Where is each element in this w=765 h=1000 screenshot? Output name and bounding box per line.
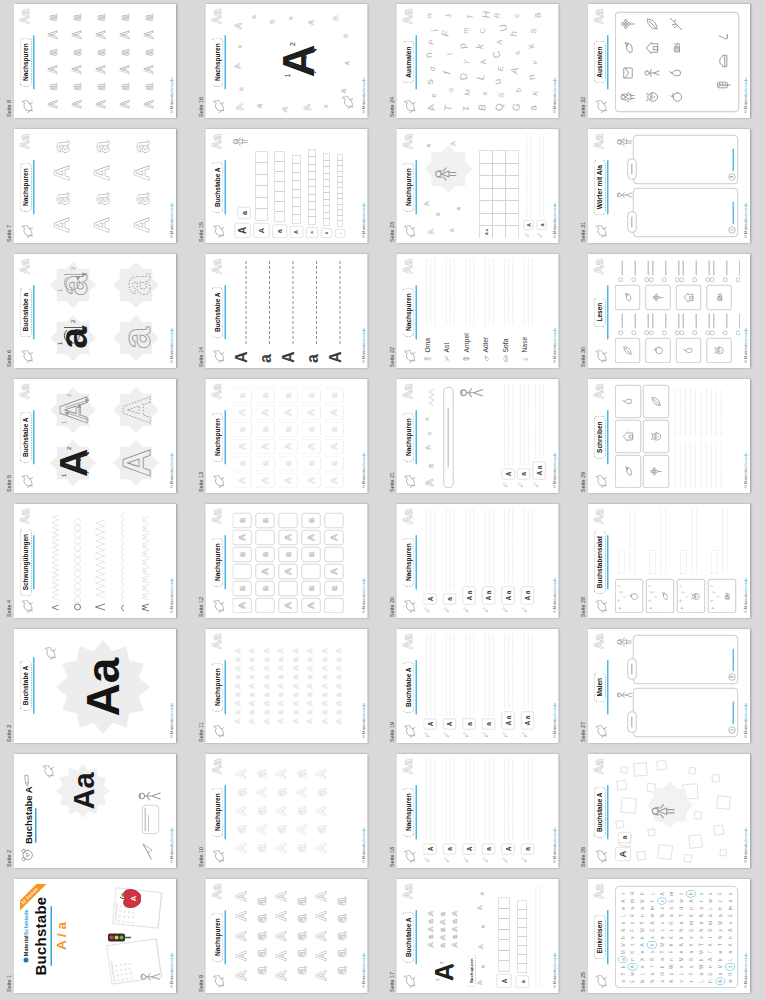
letters-badge-icon: Aa bbox=[593, 509, 605, 524]
color-letter: f bbox=[441, 70, 453, 75]
big-letters-star: Aa bbox=[55, 761, 111, 821]
card-doodle-icon bbox=[619, 65, 636, 82]
worksheet-header: Buchstabe AAa bbox=[19, 384, 40, 488]
worksheet-thumbnail-grid: Seite 132 SeitenMaterialSchmiedeBuchstab… bbox=[0, 0, 765, 1000]
page-cell: Seite 15Buchstabe AAaAaAaAaAa© Materials… bbox=[191, 125, 382, 250]
girl-figure-icon bbox=[651, 803, 679, 821]
page-thumbnail[interactable]: SchwungübungenAa© Materialschmiede bbox=[14, 504, 176, 618]
worksheet-header: Buchstabe aAa bbox=[19, 259, 40, 363]
worksheet-title: Malen bbox=[594, 672, 606, 701]
pencil-doodle-icon bbox=[482, 732, 489, 739]
worksheet-title: Lesen bbox=[594, 297, 606, 327]
page-thumbnail[interactable]: NachspurenAaOmaAstAmpelAdlerSofaNase© Ma… bbox=[397, 254, 559, 368]
writing-lines bbox=[502, 634, 514, 709]
scatter-square bbox=[633, 762, 647, 776]
flower-doodle-icon bbox=[649, 465, 663, 479]
subtitle-line bbox=[416, 535, 418, 589]
letter-box: a bbox=[237, 207, 250, 219]
page-cell: Seite 32AusmalenAa© Materialschmiede bbox=[574, 0, 765, 125]
subtitle-line bbox=[607, 160, 609, 214]
page-thumbnail[interactable]: BuchstabensalatAaaeplfaeplfaeplfaeplf© M… bbox=[588, 504, 750, 618]
letters-badge-icon: Aa bbox=[593, 634, 605, 649]
kangaroo-icon bbox=[210, 350, 225, 363]
worksheet-header: SchreibenAa bbox=[593, 384, 614, 488]
writing-lines bbox=[443, 259, 455, 325]
page-cell: Seite 26Buchstabe AAaAa© Materialschmied… bbox=[574, 750, 765, 875]
subtitle-line bbox=[224, 410, 226, 464]
letter-box: a bbox=[516, 976, 530, 989]
subtitle-line bbox=[416, 285, 418, 339]
pencil-doodle-icon bbox=[463, 732, 470, 739]
worksheet-header: NachspurenAa bbox=[402, 259, 423, 363]
page-thumbnail[interactable]: EinkreisenAaxTkaMVhNsLeArEwAnKtvFzRamHbL… bbox=[588, 879, 750, 993]
copyright: © Materialschmiede bbox=[361, 703, 365, 738]
worksheet-header: AusmalenAa bbox=[402, 9, 423, 113]
page-label: Seite 26 bbox=[580, 750, 586, 867]
page-label: Seite 21 bbox=[389, 375, 395, 492]
worksheet-header: Wörter mit A/aAa bbox=[593, 134, 614, 238]
trace-start-letter: A bbox=[326, 349, 350, 363]
copyright: © Materialschmiede bbox=[553, 953, 557, 988]
paper-plane-icon bbox=[142, 843, 153, 860]
pencil-doodle-icon bbox=[502, 732, 509, 739]
kangaroo-icon bbox=[402, 975, 417, 988]
zigzag-icon bbox=[428, 388, 436, 407]
letter-box: a bbox=[618, 832, 631, 843]
page-thumbnail[interactable]: SchreibenAa© Materialschmiede bbox=[588, 379, 750, 493]
pencil-doodle-icon bbox=[502, 607, 509, 614]
page-thumbnail[interactable]: Buchstabe AAaAa© Materialschmiede bbox=[588, 754, 750, 868]
letters-badge-icon: Aa bbox=[402, 634, 414, 649]
svg-text:a: a bbox=[52, 274, 95, 296]
copyright: © Materialschmiede bbox=[744, 203, 748, 238]
color-letter: S bbox=[529, 28, 538, 35]
letters-badge-icon: Aa bbox=[402, 9, 414, 24]
worksheet-title: Buchstabe A bbox=[403, 662, 415, 712]
writing-lines bbox=[675, 390, 696, 436]
letter-star-poster: Aa bbox=[48, 639, 159, 735]
worksheet-title: Nachspuren bbox=[20, 38, 32, 87]
writing-lines bbox=[463, 509, 475, 584]
swing-exercise-row bbox=[93, 510, 107, 613]
drawing-panel: 2 bbox=[633, 635, 738, 684]
color-letter: E bbox=[496, 65, 505, 71]
pencil-doodle-icon bbox=[533, 482, 540, 489]
nose-doodle-icon bbox=[715, 28, 732, 45]
pencil-doodle-icon bbox=[482, 607, 489, 614]
picture-box: aeplf bbox=[677, 579, 705, 613]
house-doodle-icon bbox=[682, 291, 695, 304]
worksheet-header: MalenAa bbox=[593, 634, 614, 738]
worksheet-title: Nachspuren bbox=[211, 913, 223, 962]
kangaroo-icon bbox=[40, 765, 55, 778]
page-cell: Seite 4SchwungübungenAa© Materialschmied… bbox=[0, 500, 191, 625]
page-thumbnail[interactable]: AusmalenAaAesdnPiwTuftFJzMDYpmrBxLAkCHQS… bbox=[397, 4, 559, 118]
svg-text:1: 1 bbox=[57, 288, 63, 292]
subtitle-line bbox=[607, 410, 609, 464]
owl-doodle-icon bbox=[649, 430, 663, 444]
color-letter: G bbox=[510, 102, 523, 112]
writing-lines bbox=[537, 134, 545, 217]
page-label: Seite 1 bbox=[6, 875, 12, 992]
trace-start-letter: A bbox=[279, 349, 303, 363]
copyright: © Materialschmiede bbox=[170, 828, 174, 863]
kangaroo-icon bbox=[19, 225, 34, 238]
letters-badge-icon: Aa bbox=[593, 259, 605, 274]
girl-figure-icon bbox=[616, 137, 634, 148]
color-letter: A bbox=[479, 59, 488, 65]
instruction-banner bbox=[444, 387, 454, 488]
color-letter: d bbox=[428, 66, 437, 72]
color-letter: C bbox=[478, 27, 487, 34]
page-cell: Seite 29SchreibenAa© Materialschmiede bbox=[574, 375, 765, 500]
page-thumbnail[interactable]: AusmalenAa© Materialschmiede bbox=[588, 4, 750, 118]
copyright: © Materialschmiede bbox=[170, 953, 174, 988]
svg-text:1: 1 bbox=[61, 473, 67, 477]
page-label: Seite 4 bbox=[6, 500, 12, 617]
scatter-square bbox=[713, 825, 724, 836]
color-letter: n bbox=[424, 52, 435, 59]
traffic-light-icon bbox=[107, 932, 132, 943]
writing-lines bbox=[675, 442, 696, 488]
page-cell: Seite 28BuchstabensalatAaaeplfaeplfaeplf… bbox=[574, 500, 765, 625]
page-label: Seite 23 bbox=[389, 125, 395, 242]
letters-badge-icon: Aa bbox=[19, 134, 31, 149]
page-label: Seite 19 bbox=[389, 625, 395, 742]
trace-line bbox=[316, 261, 327, 344]
worksheet-header: SchwungübungenAa bbox=[19, 509, 40, 613]
owl-doodle-icon bbox=[689, 591, 701, 603]
kangaroo-icon bbox=[210, 225, 225, 238]
page-cell: Seite 23NachspurenAaAaAaAaAA aAa© Materi… bbox=[383, 125, 574, 250]
page-thumbnail[interactable]: Buchstabe AAa© Materialschmiede bbox=[14, 754, 176, 868]
letter-box: A bbox=[253, 223, 269, 238]
color-letter: s bbox=[513, 51, 522, 56]
letter-box: A bbox=[502, 844, 515, 855]
flower-doodle-icon bbox=[651, 291, 664, 304]
worksheet-title: Ausmalen bbox=[594, 41, 606, 83]
worksheet-title: Buchstabensalat bbox=[594, 531, 606, 594]
page-thumbnail[interactable]: NachspurenAaAaAaAAaA a© Materialschmiede bbox=[397, 379, 559, 493]
worksheet-title: Nachspuren bbox=[403, 413, 415, 462]
page-label: Seite 8 bbox=[6, 0, 12, 117]
logo-dot-icon bbox=[24, 958, 29, 963]
subtitle-line bbox=[416, 660, 418, 714]
letters-badge-icon: Aa bbox=[593, 759, 605, 774]
color-letter: c bbox=[512, 13, 521, 19]
worksheet-header: NachspurenAa bbox=[210, 634, 231, 738]
writing-lines bbox=[521, 509, 533, 584]
panel-caption-line bbox=[733, 202, 734, 225]
color-letter: L bbox=[474, 73, 487, 81]
letter-box: A bbox=[234, 223, 250, 238]
color-letter: a bbox=[527, 105, 539, 112]
page-cell: Seite 14Buchstabe AAaAaAaA© Materialschm… bbox=[191, 250, 382, 375]
page-thumbnail[interactable]: NachspurenAaAaA aA aA aA a© Materialschm… bbox=[397, 504, 559, 618]
copyright: © Materialschmiede bbox=[170, 703, 174, 738]
worksheet-header: Buchstabe AAa bbox=[593, 759, 614, 863]
page-thumbnail[interactable]: NachspurenAaAaAaAaAA aAa© Materialschmie… bbox=[397, 129, 559, 243]
apple-doodle-icon bbox=[627, 591, 639, 603]
subtitle-line bbox=[607, 35, 609, 89]
page-thumbnail[interactable]: MalenAa12© Materialschmiede bbox=[588, 629, 750, 743]
copyright: © Materialschmiede bbox=[170, 328, 174, 363]
letter-box: A bbox=[424, 844, 437, 855]
pencil-doodle-icon bbox=[482, 857, 489, 864]
worksheet-title: Nachspuren bbox=[403, 288, 415, 337]
flower-doodle-icon bbox=[619, 16, 636, 33]
copyright: © Materialschmiede bbox=[170, 203, 174, 238]
worksheet-header: NachspurenAa bbox=[402, 759, 423, 863]
pear-doodle-icon bbox=[621, 395, 635, 409]
letter-box: A bbox=[290, 226, 303, 238]
page-thumbnail[interactable]: NachspurenAaAaAaAaAaAaAaAaAaAaAaAaAaAaAa… bbox=[14, 4, 176, 118]
pages-grid[interactable]: Seite 132 SeitenMaterialSchmiedeBuchstab… bbox=[0, 0, 765, 1000]
trace-letter: a bbox=[104, 260, 165, 310]
letter-box: A a bbox=[482, 587, 495, 605]
subtitle-line bbox=[416, 785, 418, 839]
page-thumbnail[interactable]: NachspurenAaAAAAAaaaaaAAAAAaaaaaAAAAAaaa… bbox=[205, 879, 367, 993]
page-thumbnail[interactable]: Buchstabe AAaA12A12AA© Materialschmiede bbox=[14, 379, 176, 493]
letter-box: A bbox=[615, 847, 631, 861]
page-thumbnail[interactable]: NachspurenAaAaAaAaAaAaAaAaAaAaAaAaAaA© M… bbox=[205, 754, 367, 868]
swing-exercise-row bbox=[48, 510, 62, 613]
letter-box: a bbox=[521, 844, 534, 855]
picture-box bbox=[643, 385, 669, 418]
writing-lines bbox=[443, 509, 455, 591]
word-label: Ast bbox=[443, 328, 451, 353]
letter-box: a bbox=[443, 594, 456, 605]
page-cell: Seite 132 SeitenMaterialSchmiedeBuchstab… bbox=[0, 875, 191, 1000]
kangaroo-icon bbox=[593, 850, 608, 863]
page-thumbnail[interactable]: 32 SeitenMaterialSchmiedeBuchstabeA / aA… bbox=[14, 879, 176, 993]
picture-box bbox=[615, 455, 641, 488]
color-letter: e bbox=[429, 93, 438, 98]
kangaroo-icon bbox=[402, 100, 417, 113]
page-label: Seite 24 bbox=[389, 0, 395, 117]
page-thumbnail[interactable]: LesenAa© Materialschmiede bbox=[588, 254, 750, 368]
girl-figure-icon bbox=[435, 166, 461, 182]
copyright: © Materialschmiede bbox=[170, 453, 174, 488]
letter-box: a bbox=[482, 719, 495, 730]
pencil-doodle-icon bbox=[424, 607, 431, 614]
kangaroo-icon bbox=[19, 475, 34, 488]
subtitle-line bbox=[416, 410, 418, 464]
color-letter: A bbox=[495, 39, 504, 45]
scatter-square bbox=[636, 851, 645, 860]
word-label: Sofa bbox=[502, 328, 510, 353]
page-thumbnail[interactable]: NachspurenAaAaAaAaAaAaAa© Materialschmie… bbox=[14, 129, 176, 243]
word-label: Adler bbox=[482, 328, 490, 353]
writing-lines bbox=[424, 634, 436, 716]
subtitle-line bbox=[607, 535, 609, 589]
subtitle-line bbox=[33, 285, 35, 339]
letters-badge-icon: Aa bbox=[210, 634, 222, 649]
kangaroo-icon bbox=[593, 975, 608, 988]
color-letter: C bbox=[490, 50, 503, 59]
svg-text:Aa: Aa bbox=[77, 657, 129, 716]
page-thumbnail[interactable]: NachspurenAaAaAaAa© Materialschmiede bbox=[397, 754, 559, 868]
kangaroo-icon bbox=[339, 96, 354, 109]
page-cell: Seite 22NachspurenAaOmaAstAmpelAdlerSofa… bbox=[383, 250, 574, 375]
worksheet-title: Schwungübungen bbox=[20, 529, 32, 596]
kangaroo-icon bbox=[593, 475, 608, 488]
worksheet-title: Nachspuren bbox=[211, 663, 223, 712]
page-label: Seite 32 bbox=[580, 0, 586, 117]
writing-lines bbox=[521, 634, 533, 709]
color-letter: r bbox=[463, 14, 475, 19]
swing-exercise-row bbox=[70, 510, 84, 613]
svg-text:a: a bbox=[52, 327, 95, 349]
page-cell: Seite 6Buchstabe aAaa12a12aa© Materialsc… bbox=[0, 250, 191, 375]
worksheet-header: Buchstabe AAa bbox=[210, 134, 231, 238]
page-thumbnail[interactable]: Buchstabe aAaa12a12aa© Materialschmiede bbox=[14, 254, 176, 368]
page-cell: Seite 30LesenAa© Materialschmiede bbox=[574, 250, 765, 375]
subtitle-line bbox=[607, 660, 609, 714]
worksheet-header: NachspurenAa bbox=[210, 384, 231, 488]
scatter-square bbox=[688, 767, 695, 774]
kangaroo-icon bbox=[402, 225, 417, 238]
coloring-frame bbox=[615, 12, 739, 112]
page-label: Seite 14 bbox=[197, 250, 203, 367]
kangaroo-icon bbox=[593, 725, 608, 738]
page-thumbnail[interactable]: Buchstabe AAaAaAaA© Materialschmiede bbox=[205, 254, 367, 368]
writing-lines bbox=[443, 759, 455, 841]
subtitle-line bbox=[224, 285, 226, 339]
copyright: © Materialschmiede bbox=[744, 328, 748, 363]
kangaroo-icon bbox=[210, 725, 225, 738]
writing-lines bbox=[463, 259, 475, 325]
letters-badge-icon: Aa bbox=[19, 384, 31, 399]
panel-number: 2 bbox=[728, 174, 735, 181]
bird-doodle-icon bbox=[658, 591, 670, 603]
page-label: Seite 3 bbox=[6, 625, 12, 742]
page-label: Seite 10 bbox=[197, 750, 203, 867]
worksheet-title: Nachspuren bbox=[211, 538, 223, 587]
color-letter: x bbox=[525, 43, 537, 51]
svg-text:1: 1 bbox=[283, 73, 290, 77]
scatter-square bbox=[656, 760, 667, 771]
writing-lines bbox=[424, 509, 436, 591]
worksheet-header: LesenAa bbox=[593, 259, 614, 363]
page-thumbnail[interactable]: NachspurenAaA12AaAaAaAaAaAaAaAaA© Materi… bbox=[205, 4, 367, 118]
letter-box: a bbox=[517, 469, 530, 480]
worksheet-header: NachspurenAa bbox=[210, 9, 231, 113]
worksheet-header: NachspurenAa bbox=[19, 134, 40, 238]
subtitle-line bbox=[33, 410, 35, 464]
page-label: Seite 6 bbox=[6, 250, 12, 367]
pencil-doodle-icon bbox=[443, 607, 450, 614]
worksheet-title: Schreiben bbox=[594, 416, 606, 458]
scatter-square bbox=[615, 820, 624, 829]
page-cell: Seite 8NachspurenAaAaAaAaAaAaAaAaAaAaAaA… bbox=[0, 0, 191, 125]
letter-box: A a bbox=[463, 587, 476, 605]
page-label: Seite 9 bbox=[197, 875, 203, 992]
color-letter: B bbox=[476, 103, 489, 112]
svg-text:2: 2 bbox=[66, 446, 72, 450]
page-thumbnail[interactable]: Buchstabe AAaA12AaAaAaAaAaAaAaANachspure… bbox=[397, 879, 559, 993]
pencil-doodle-icon bbox=[463, 857, 470, 864]
worksheet-header: NachspurenAa bbox=[210, 884, 231, 988]
copyright: © Materialschmiede bbox=[361, 828, 365, 863]
kangaroo-icon bbox=[402, 475, 417, 488]
kangaroo-icon bbox=[210, 850, 225, 863]
page-thumbnail[interactable]: NachspurenAaAaAaAaAaAaAaAaAaAaAaAaAaAaAa… bbox=[205, 379, 367, 493]
subtitle-line bbox=[416, 910, 418, 964]
swing-exercise-row bbox=[138, 510, 152, 613]
subtitle-line bbox=[607, 910, 609, 964]
trace-letter: A bbox=[104, 385, 165, 435]
color-letter: M bbox=[462, 88, 472, 96]
writing-lines bbox=[443, 634, 455, 716]
pencil-doodle-icon bbox=[443, 732, 450, 739]
trace-letter: A12 bbox=[41, 438, 102, 488]
word-label: Oma bbox=[424, 328, 432, 353]
house-doodle-icon bbox=[621, 430, 635, 444]
color-letter: s bbox=[424, 78, 436, 86]
cover-subtitle-line bbox=[51, 906, 53, 966]
drawing-panel: 2 bbox=[633, 135, 738, 184]
inner-label: Nachspuren bbox=[468, 954, 476, 987]
ampel-doodle-icon bbox=[463, 355, 472, 364]
kangaroo-icon bbox=[402, 600, 417, 613]
bird-doodle-icon bbox=[621, 291, 634, 304]
scatter-square bbox=[683, 854, 691, 862]
kangaroo-icon bbox=[210, 600, 225, 613]
page-thumbnail[interactable]: Buchstabe AAa© Materialschmiede bbox=[14, 629, 176, 743]
page-cell: Seite 19Buchstabe AAaAAaaA aA a© Materia… bbox=[383, 625, 574, 750]
pencil-doodle-icon bbox=[424, 857, 431, 864]
reading-item bbox=[706, 314, 740, 364]
writing-lines bbox=[482, 634, 494, 716]
person-doodle-icon bbox=[424, 355, 433, 364]
scatter-square bbox=[693, 811, 701, 819]
page-thumbnail[interactable]: Wörter mit A/aAa12© Materialschmiede bbox=[588, 129, 750, 243]
subtitle-line bbox=[33, 160, 35, 214]
worksheet-header: NachspurenAa bbox=[402, 384, 423, 488]
trace-letter: a12 bbox=[41, 313, 102, 363]
copyright: © Materialschmiede bbox=[553, 78, 557, 113]
color-letter: z bbox=[459, 105, 471, 113]
drawing-panel: 1 bbox=[633, 688, 738, 737]
page-thumbnail[interactable]: NachspurenAaAaAaAaAaAAaAaAaAaAAaAaAaAaAA… bbox=[205, 629, 367, 743]
trace-line bbox=[269, 261, 280, 344]
apple-icon: A bbox=[119, 887, 143, 910]
leaf-doodle-icon bbox=[621, 344, 634, 357]
page-thumbnail[interactable]: Buchstabe AAaAAaaA aA a© Materialschmied… bbox=[397, 629, 559, 743]
page-label: Seite 30 bbox=[580, 250, 586, 367]
writing-lines bbox=[482, 759, 494, 841]
swing-exercise-row bbox=[115, 510, 129, 613]
letter-box: A a bbox=[521, 587, 534, 605]
letter-box: A bbox=[502, 469, 515, 480]
color-letter: v bbox=[530, 60, 539, 65]
trace-line bbox=[245, 261, 256, 344]
page-thumbnail[interactable]: NachspurenAaAaaAaaAaaAAaAAaaAaaAA© Mater… bbox=[205, 504, 367, 618]
page-thumbnail[interactable]: Buchstabe AAaAaAaAaAa© Materialschmiede bbox=[205, 129, 367, 243]
letters-badge-icon: Aa bbox=[19, 9, 31, 24]
page-label: Seite 28 bbox=[580, 500, 586, 617]
nose-doodle-icon bbox=[521, 355, 530, 364]
page-title-text: Buchstabe A bbox=[23, 786, 34, 844]
color-letter: J bbox=[444, 14, 453, 19]
svg-text:A: A bbox=[129, 895, 138, 901]
house-doodle-icon bbox=[643, 40, 660, 57]
writing-lines bbox=[517, 384, 529, 466]
page-cell: Seite 11NachspurenAaAaAaAaAaAAaAaAaAaAAa… bbox=[191, 625, 382, 750]
worksheet-title: Buchstabe A bbox=[403, 912, 415, 962]
color-letter: K bbox=[531, 90, 540, 96]
